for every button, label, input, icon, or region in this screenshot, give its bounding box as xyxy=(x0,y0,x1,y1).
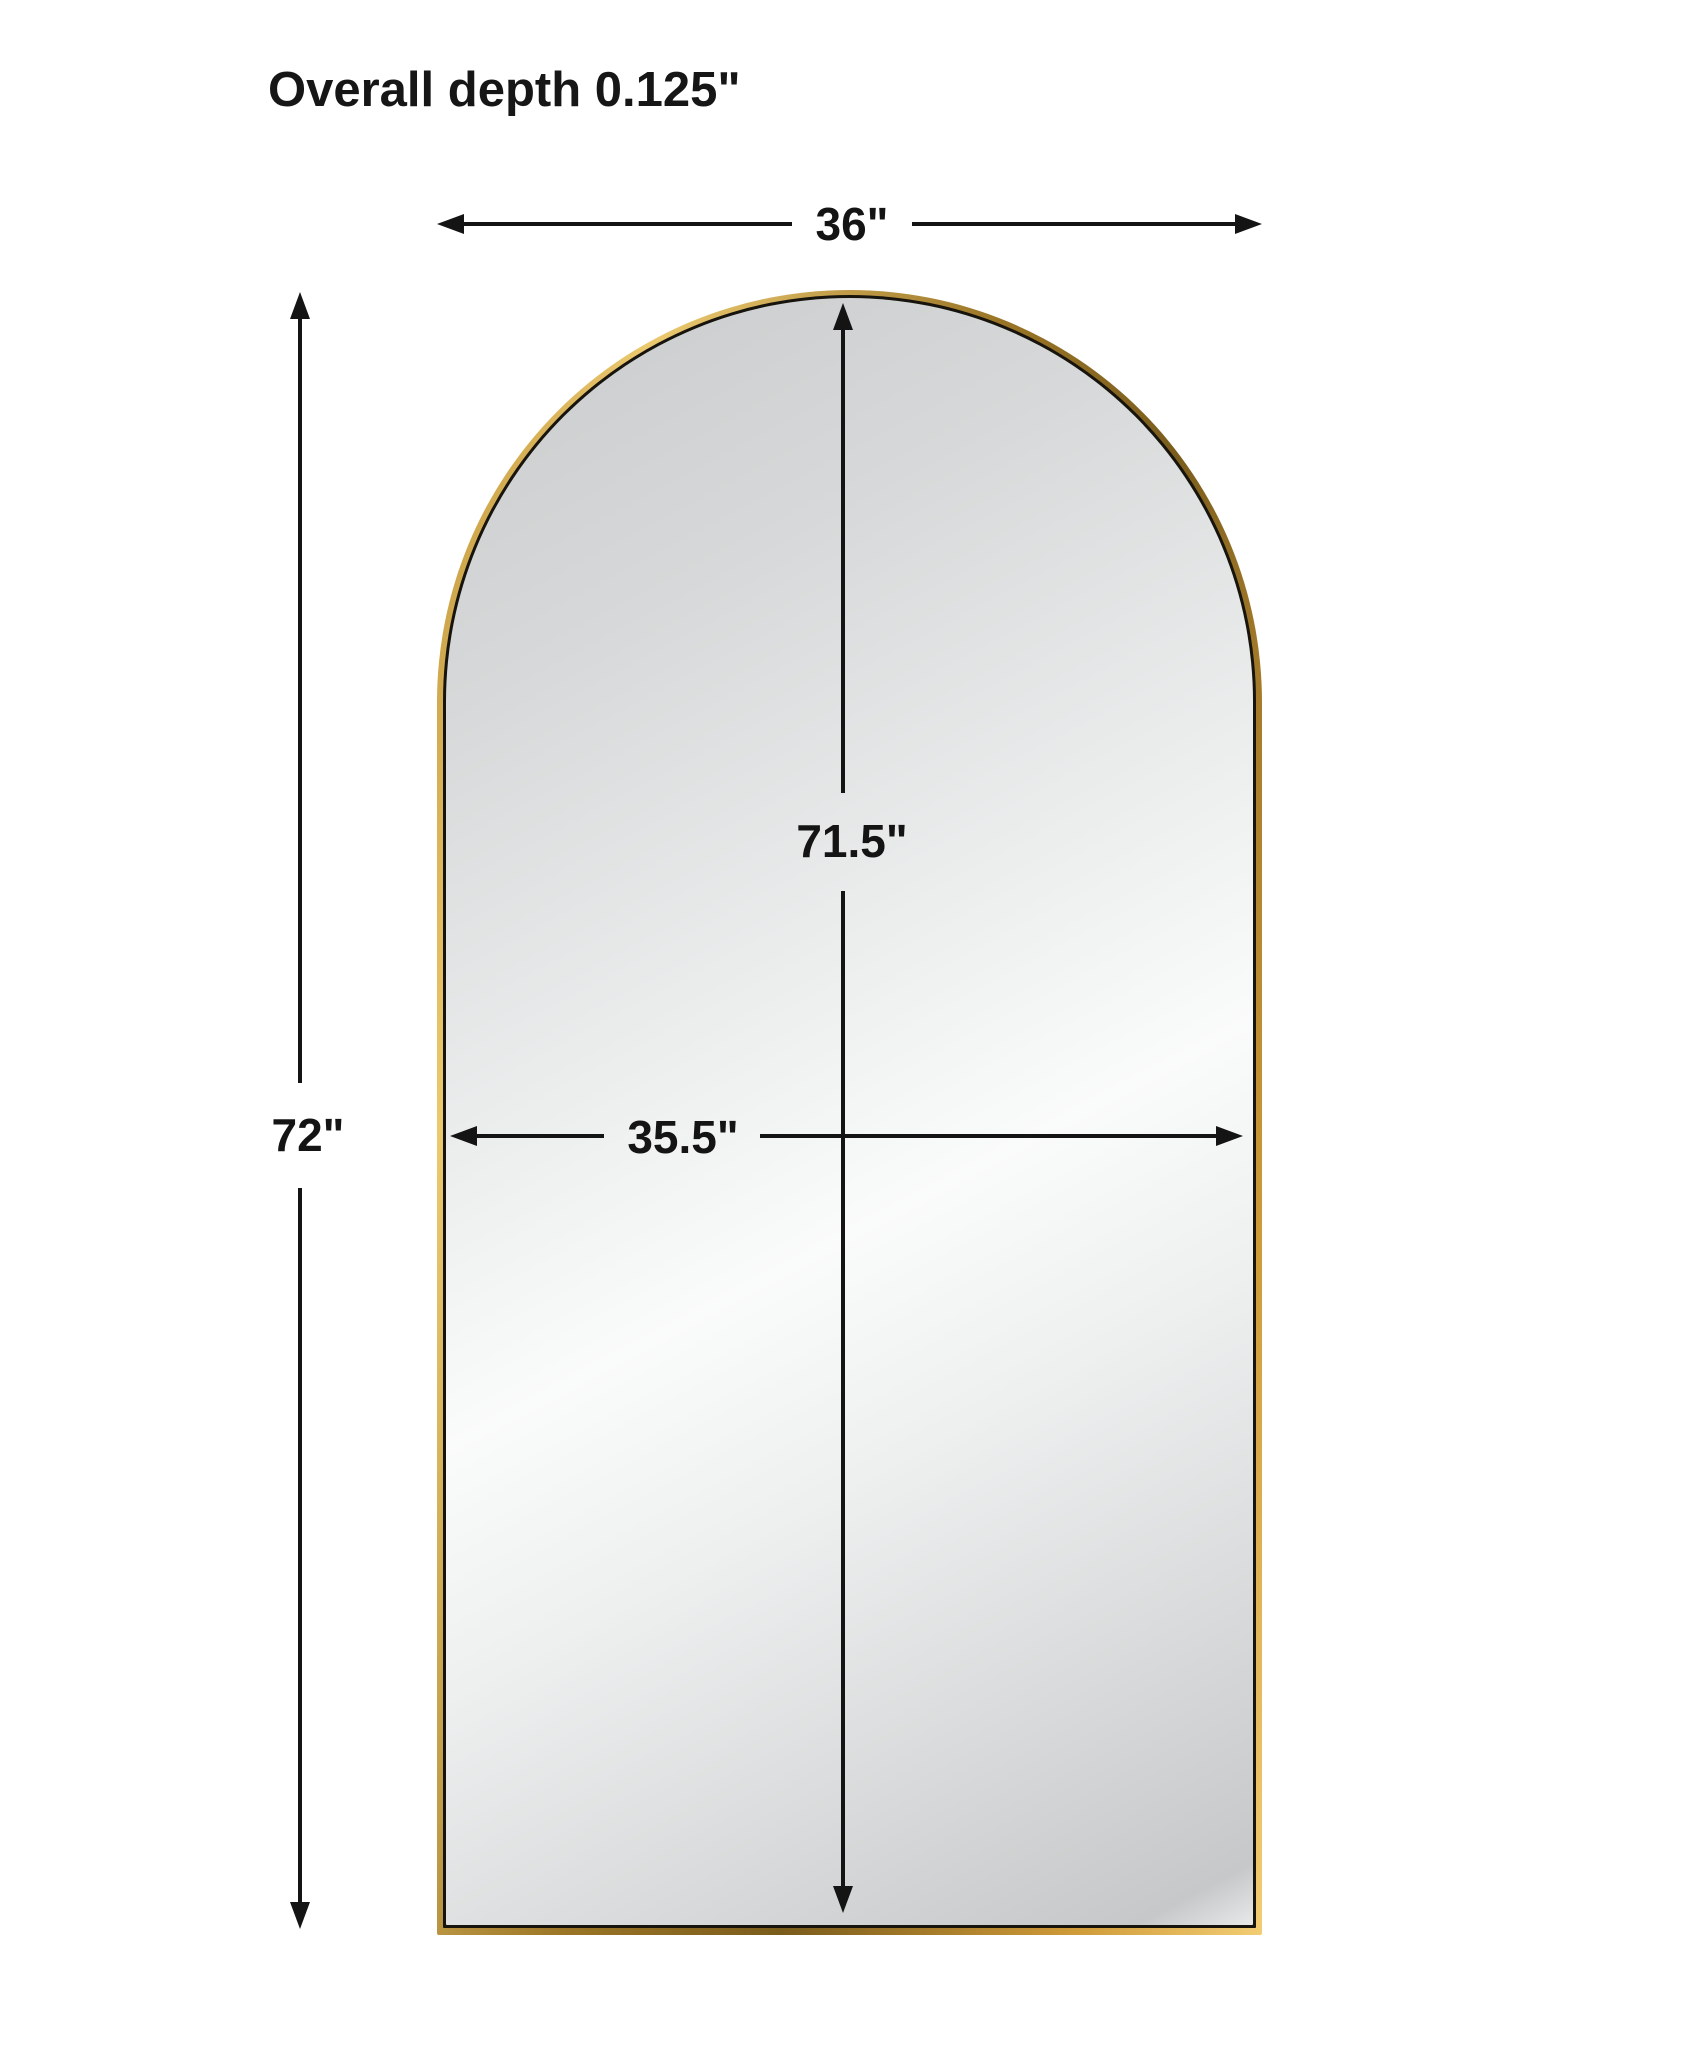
dimension-line xyxy=(912,222,1236,226)
arrow-left-icon xyxy=(450,1126,477,1146)
arrow-up-icon xyxy=(290,292,310,319)
arrow-up-icon xyxy=(833,303,853,330)
arrow-down-icon xyxy=(290,1902,310,1929)
arrow-down-icon xyxy=(833,1886,853,1913)
arrow-right-icon xyxy=(1235,214,1262,234)
dimension-line xyxy=(462,222,792,226)
mirror-frame-inner-line xyxy=(443,295,1256,1928)
dimension-line xyxy=(298,317,302,1083)
overall-height-label: 72" xyxy=(272,1112,345,1158)
dimension-line xyxy=(760,1134,1218,1138)
mirror-glass xyxy=(446,298,1253,1925)
dimension-line xyxy=(841,328,845,793)
dimension-line xyxy=(841,891,845,1887)
mirror-gold-frame xyxy=(437,290,1262,1935)
overall-width-label: 36" xyxy=(816,201,889,247)
mirror-width-label: 35.5" xyxy=(627,1114,738,1160)
product-dimension-diagram: Overall depth 0.125" 36" 72" 71.5" 35.5" xyxy=(0,0,1695,2048)
dimension-line xyxy=(298,1188,302,1904)
overall-depth-heading: Overall depth 0.125" xyxy=(268,62,741,118)
dimension-line xyxy=(476,1134,604,1138)
arrow-left-icon xyxy=(437,214,464,234)
mirror-height-label: 71.5" xyxy=(796,818,907,864)
arrow-right-icon xyxy=(1216,1126,1243,1146)
